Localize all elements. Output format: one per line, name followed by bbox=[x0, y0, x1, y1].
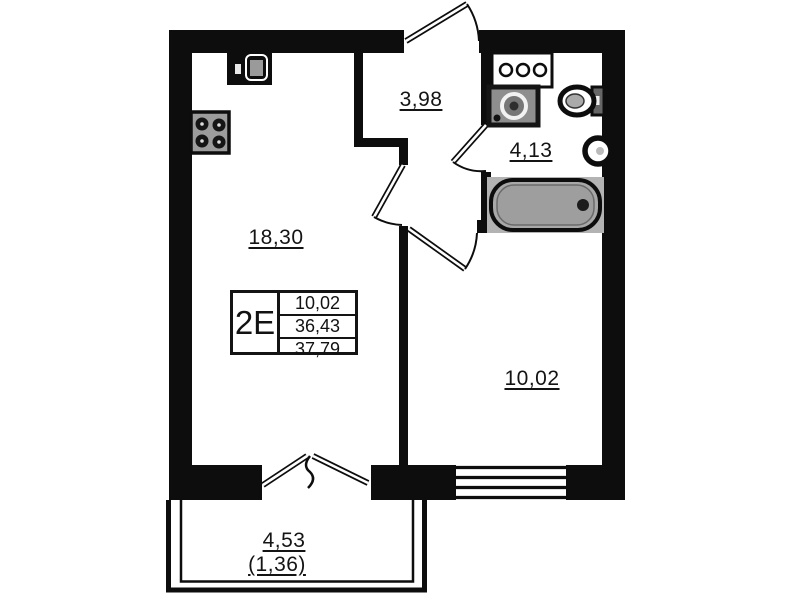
unit-info-table: 2E 10,02 36,43 37,79 bbox=[230, 290, 358, 355]
wash-basin-icon bbox=[585, 138, 613, 164]
room-label-bedroom: 10,02 bbox=[499, 367, 565, 390]
room-label-balcony-coefficient: (1,36) bbox=[244, 553, 310, 576]
unit-code: 2E bbox=[233, 293, 280, 352]
entrance-door bbox=[406, 4, 479, 41]
room-label-living-kitchen: 18,30 bbox=[243, 226, 309, 249]
room-label-bathroom: 4,13 bbox=[503, 139, 559, 162]
bathroom-door bbox=[453, 125, 486, 171]
bedroom-window bbox=[456, 468, 566, 498]
unit-area-rows: 10,02 36,43 37,79 bbox=[280, 293, 355, 352]
room-label-balcony: 4,53 bbox=[251, 529, 317, 552]
bathroom-counter-icon bbox=[492, 53, 552, 87]
living-room-door bbox=[374, 165, 403, 225]
unit-living-area: 10,02 bbox=[280, 293, 355, 314]
bedroom-door bbox=[409, 229, 477, 269]
bathtub-icon bbox=[487, 177, 604, 233]
stove-icon bbox=[191, 112, 229, 153]
floor-plan-page: 18,30 3,98 4,13 10,02 4,53 (1,36) 2E 10,… bbox=[0, 0, 799, 600]
toilet-icon bbox=[560, 87, 604, 115]
kitchen-sink-icon bbox=[227, 50, 272, 85]
unit-area: 36,43 bbox=[280, 314, 355, 337]
unit-total-area: 37,79 bbox=[280, 337, 355, 360]
balcony-door bbox=[263, 456, 368, 488]
room-label-hallway: 3,98 bbox=[393, 88, 449, 111]
washing-machine-icon bbox=[489, 87, 538, 125]
